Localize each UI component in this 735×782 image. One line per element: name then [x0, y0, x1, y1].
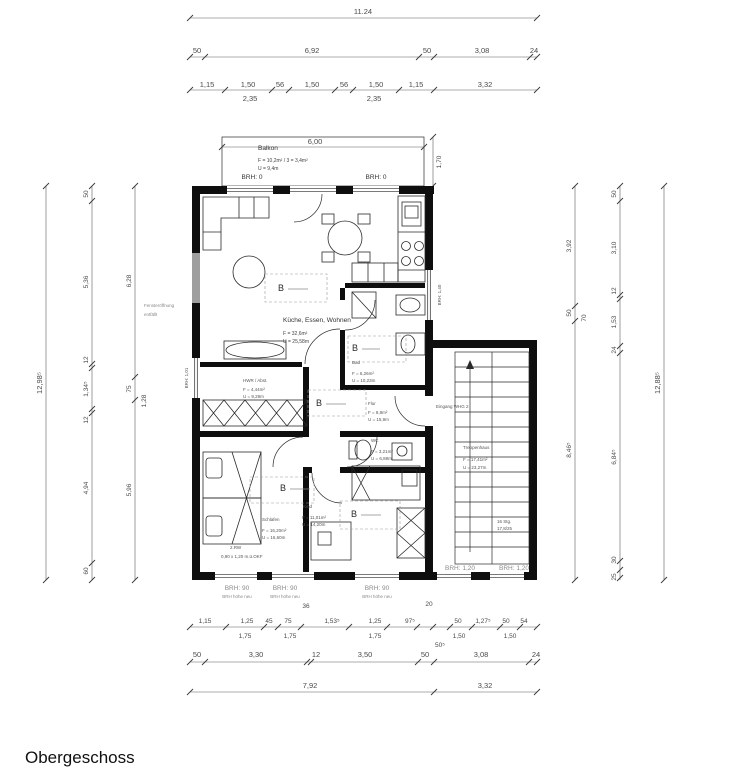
dim-bottom-wall-thickness: 36 20	[302, 601, 433, 610]
exterior-walls	[192, 186, 537, 580]
dim: 1,50	[305, 80, 320, 89]
dim: 12	[611, 287, 618, 295]
dim: 1,27⁵	[475, 618, 491, 625]
balcony-area: F = 10,2m² / 3 = 3,4m²	[258, 158, 308, 164]
dim: 50	[566, 309, 573, 317]
escape-window-note-1: 2.RW	[230, 545, 242, 550]
window-removed-note-2: entfällt	[144, 312, 158, 317]
removed-window-gray	[192, 253, 200, 303]
dim-chain-right-outer: 50 3,10 12 1,53 24 6,84⁵ 30 25	[611, 183, 623, 581]
dim: 5,36	[83, 275, 90, 288]
dim-chain-left-total: 12,98⁵	[35, 183, 49, 583]
dim: 1,25	[241, 618, 254, 625]
room-kind-perimeter: U = 14,20m	[302, 522, 326, 527]
room-flur-perimeter: U = 15,9m	[368, 417, 389, 422]
floor-plan-page: 11.24 50 6,92 50 3,08 24 1,15 1,50 56 1,…	[0, 0, 735, 782]
dim: 56	[276, 80, 284, 89]
brh-120-label-2: BRH: 1,20	[499, 565, 529, 572]
dim: 50	[502, 618, 510, 625]
dim: 6,92	[305, 46, 320, 55]
hwr-shelving	[203, 400, 307, 426]
dim: 30	[611, 556, 618, 564]
brh-90-label-1: BRH: 90	[225, 585, 250, 592]
dim-36: 36	[302, 603, 310, 610]
balcony-perimeter: U = 9,4m	[258, 166, 278, 172]
dim-chain-bottom-row3: 7,92 3,32	[187, 681, 540, 695]
dim-chain-left-outer: 50 5,36 12 1,34⁵ 12 4,94 60	[83, 183, 95, 583]
dim: 50	[423, 46, 431, 55]
bathroom-fixtures	[352, 292, 425, 355]
brh-120-label-1: BRH: 1,20	[445, 565, 475, 572]
dim: 1,75	[239, 633, 252, 640]
dim: 7,92	[303, 681, 318, 690]
room-treppenhaus-perimeter: U = 23,27m	[463, 465, 487, 470]
window-removed-note-1: Fensteröffnung	[144, 303, 175, 308]
dim: 25	[611, 573, 618, 581]
dim: 50	[454, 618, 462, 625]
balcony-width-dim: 6,00	[308, 137, 323, 146]
dim: 6,84⁵	[611, 449, 618, 465]
room-bad-name: Bad	[352, 360, 361, 365]
dim: 24	[532, 650, 540, 659]
brh-101-label: BRH: 1,01	[184, 367, 189, 388]
balcony-depth-dim: 1,70	[436, 155, 443, 168]
dim: 54	[520, 618, 528, 625]
room-schlafen-perimeter: U = 16,60m	[262, 535, 286, 540]
b-mark-living: B	[278, 283, 284, 293]
dim-chain-left-inner: 6,28 75 1,28 5,96	[126, 183, 148, 583]
dim: 1,28	[141, 394, 148, 407]
room-flur-area: F = 8,9m²	[368, 410, 388, 415]
dim: 1,50	[453, 633, 466, 640]
room-wc-perimeter: U = 6,88m	[371, 456, 392, 461]
room-living-name: Küche, Essen, Wohnen	[283, 317, 351, 324]
dim: 50	[83, 190, 90, 198]
floor-plan-drawing: 11.24 50 6,92 50 3,08 24 1,15 1,50 56 1,…	[0, 0, 735, 782]
escape-window-note-2: 0,90 x 1,20 m.ü.OKF	[221, 554, 263, 559]
dim: 1,34⁵	[83, 381, 90, 397]
dim: 8,46⁵	[566, 442, 573, 458]
brh-90-sub-1: BRH höhe neu	[222, 594, 252, 599]
dim-chain-right-total: 12,88⁵	[653, 183, 667, 583]
room-hwr-perimeter: U = 9,29m	[243, 394, 264, 399]
room-schlafen-area: F = 16,20m²	[262, 528, 287, 533]
room-treppenhaus-area: F = 17,41m²	[463, 457, 488, 462]
dim-20: 20	[425, 601, 433, 608]
room-kind-name: Kind	[303, 504, 313, 509]
dim: 1,75	[284, 633, 297, 640]
dim: 3,08	[474, 650, 489, 659]
brh-90-sub-2: BRH höhe neu	[270, 594, 300, 599]
room-wc-area: F = 3,21m²	[371, 449, 393, 454]
dim: 50	[193, 46, 201, 55]
dim: 60	[83, 567, 90, 575]
interior-walls	[200, 283, 425, 572]
bedroom-furniture	[203, 452, 261, 544]
dim: 50	[611, 190, 618, 198]
balcony: 6,00 1,70 Balkon F = 10,2m² / 3 = 3,4m² …	[219, 134, 443, 189]
dim: 70	[581, 314, 588, 322]
room-schlafen-name: Schlafen	[262, 517, 280, 522]
dim: 3,32	[478, 681, 493, 690]
room-wc-name: WC	[371, 438, 379, 443]
dim: 3,10	[611, 241, 618, 254]
dim: 1,25	[369, 618, 382, 625]
room-hwr-area: F = 4,44m²	[243, 387, 265, 392]
dim: 3,92	[566, 239, 573, 252]
dim: 4,94	[83, 481, 90, 494]
kids-room-furniture	[311, 466, 425, 560]
balcony-door-windows	[227, 186, 399, 194]
dim: 12	[83, 416, 90, 424]
dim-chain-bottom-row2: 50 3,30 12 3,50 50 3,08 24	[187, 650, 540, 665]
dim: 1,15	[200, 80, 215, 89]
b-mark-bad: B	[352, 343, 358, 353]
dim: 3,30	[249, 650, 264, 659]
dim: 12	[312, 650, 320, 659]
dim: 2,35	[243, 94, 258, 103]
dim-chain-top-row3: 1,15 1,50 56 1,50 56 1,50 1,15 3,32 2,35…	[187, 80, 540, 103]
stairs-up-arrow	[466, 360, 474, 369]
dim: 1,15	[199, 618, 212, 625]
dim: 24	[530, 46, 538, 55]
brh-90-label-3: BRH: 90	[365, 585, 390, 592]
dim: 75	[126, 385, 133, 393]
kitchen-fixtures	[352, 196, 425, 282]
dim: 1,50	[241, 80, 256, 89]
dim: 1,75	[369, 633, 382, 640]
room-flur-name: Flur	[368, 401, 376, 406]
entrance-label: Eingang WHG 2	[436, 404, 469, 409]
dim: 1,50	[504, 633, 517, 640]
room-bad-perimeter: U = 10,23m	[352, 378, 376, 383]
wall-annotations: Fensteröffnung entfällt BRH: 1,01 BRH: 1…	[144, 284, 529, 599]
dim: 75	[284, 618, 292, 625]
page-title: Obergeschoss	[25, 748, 135, 767]
stairs-note-1: 16 Stg.	[497, 519, 511, 524]
dashed-marker-boxes	[250, 274, 406, 529]
dim: 24	[611, 346, 618, 354]
dim-left-total: 12,98⁵	[35, 372, 44, 394]
dim: 2,35	[367, 94, 382, 103]
dim-chain-bottom-row1: 1,15 1,25 45 75 1,53⁵ 1,25 97⁵ 50 1,27⁵ …	[187, 618, 540, 649]
dim: 1,50	[369, 80, 384, 89]
dim: 3,50	[358, 650, 373, 659]
b-mark-schlafen: B	[280, 483, 286, 493]
dim: 1,15	[409, 80, 424, 89]
dim: 12	[83, 356, 90, 364]
dim: 3,08	[475, 46, 490, 55]
stairs-note-2: 17,8/25	[497, 526, 513, 531]
room-labels: Küche, Essen, Wohnen F = 32,6m² U = 25,5…	[221, 317, 513, 559]
dim: 97⁵	[405, 618, 415, 625]
room-bad-area: F = 6,26m²	[352, 371, 374, 376]
right-wall-opening	[425, 270, 433, 320]
dim: 1,53⁵	[324, 618, 340, 625]
dim-right-total: 12,88⁵	[653, 372, 662, 394]
dim-chain-top-row2: 50 6,92 50 3,08 24	[187, 46, 540, 60]
room-living-perimeter: U = 25,58m	[283, 339, 309, 345]
dim: 45	[265, 618, 273, 625]
room-treppenhaus-name: Treppenhaus	[463, 445, 490, 450]
dim: 1,53	[611, 315, 618, 328]
brh-140-label: BRH: 1,40	[437, 284, 442, 305]
balcony-label: Balkon	[258, 145, 278, 152]
dim: 5,96	[126, 483, 133, 496]
entrance-opening	[425, 396, 433, 426]
dim: 50⁵	[435, 642, 445, 649]
room-hwr-name: HWR / Abst.	[243, 378, 268, 383]
dim-top-total: 11.24	[354, 7, 372, 16]
brh-90-label-2: BRH: 90	[273, 585, 298, 592]
dim-chain-right-inner: 3,92 50 70 8,46⁵	[566, 183, 588, 583]
room-living-area: F = 32,6m²	[283, 331, 308, 337]
brh-90-sub-3: BRH höhe neu	[362, 594, 392, 599]
dim: 3,32	[478, 80, 493, 89]
b-mark-flur: B	[316, 398, 322, 408]
dim: 6,28	[126, 274, 133, 287]
balcony-brh-left: BRH: 0	[242, 174, 263, 181]
dim: 50	[421, 650, 429, 659]
b-mark-kind: B	[351, 509, 357, 519]
dim: 50	[193, 650, 201, 659]
balcony-brh-right: BRH: 0	[366, 174, 387, 181]
dim-chain-top-total: 11.24	[187, 7, 540, 21]
dim: 56	[340, 80, 348, 89]
room-kind-area: F = 11,01m²	[302, 515, 327, 520]
